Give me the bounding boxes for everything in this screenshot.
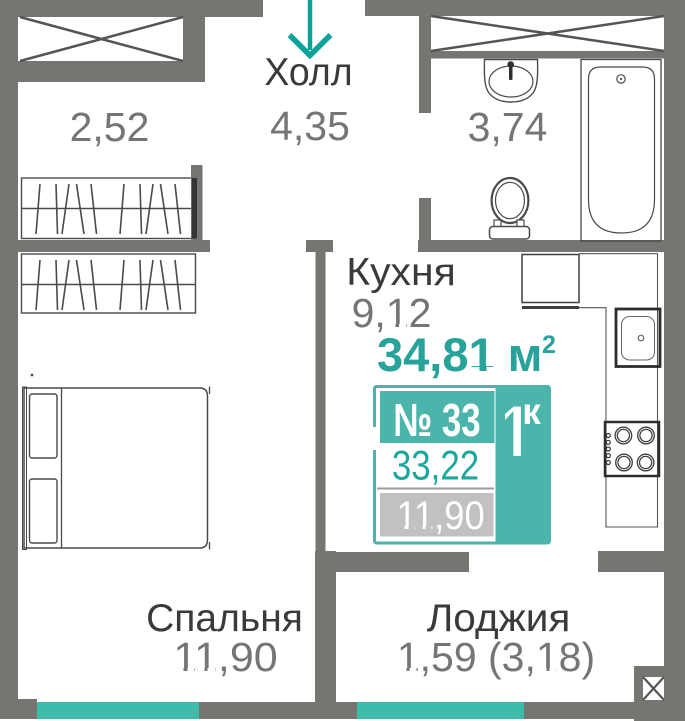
svg-text:к: к xyxy=(522,391,541,432)
svg-text:11,90: 11,90 xyxy=(173,634,277,680)
svg-text:34,81 м: 34,81 м xyxy=(377,328,542,381)
svg-text:3,74: 3,74 xyxy=(468,104,548,150)
svg-text:1,59 (3,18): 1,59 (3,18) xyxy=(397,634,595,680)
svg-text:4,35: 4,35 xyxy=(270,103,350,149)
svg-text:№ 33: № 33 xyxy=(393,394,480,446)
svg-text:Холл: Холл xyxy=(264,50,352,94)
svg-text:2,52: 2,52 xyxy=(70,104,150,150)
svg-text:11,90: 11,90 xyxy=(396,493,484,538)
svg-text:Кухня: Кухня xyxy=(346,251,456,294)
svg-text:2: 2 xyxy=(542,331,556,359)
svg-text:33,22: 33,22 xyxy=(392,443,479,490)
